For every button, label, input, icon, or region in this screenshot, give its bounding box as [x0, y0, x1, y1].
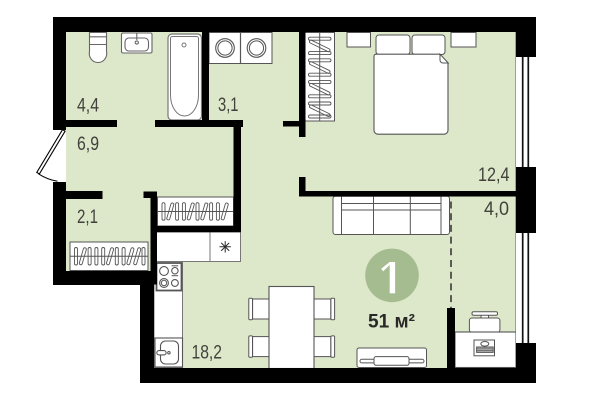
svg-text:2,1: 2,1 [77, 206, 98, 228]
svg-text:18,2: 18,2 [192, 342, 223, 364]
svg-text:4,0: 4,0 [484, 198, 509, 220]
svg-text:3,1: 3,1 [218, 94, 239, 116]
svg-text:51 м²: 51 м² [368, 310, 415, 332]
svg-text:12,4: 12,4 [478, 164, 510, 186]
svg-text:6,9: 6,9 [77, 133, 99, 155]
svg-text:4,4: 4,4 [77, 95, 99, 117]
